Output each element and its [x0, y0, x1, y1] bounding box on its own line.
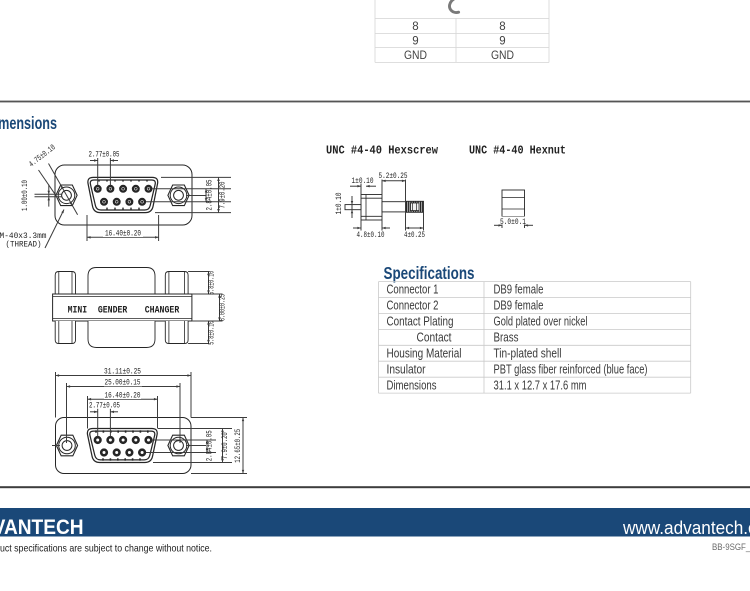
svg-text:7.9±0.20: 7.9±0.20: [219, 181, 228, 208]
svg-text:Dimensions: Dimensions: [387, 378, 437, 392]
svg-text:2.77±0.05: 2.77±0.05: [89, 402, 120, 411]
svg-text:6.00±0.25: 6.00±0.25: [219, 294, 228, 321]
svg-text:2.84±0.05: 2.84±0.05: [206, 179, 215, 210]
svg-text:GND: GND: [491, 50, 514, 62]
svg-text:Connector 2: Connector 2: [387, 299, 439, 313]
svg-text:Connector 1: Connector 1: [387, 283, 439, 297]
svg-text:2.84±0.05: 2.84±0.05: [206, 430, 215, 461]
svg-text:BB-9SGF_D: BB-9SGF_D: [712, 542, 750, 552]
svg-text:5.0±0.1: 5.0±0.1: [500, 218, 526, 227]
svg-text:ADVANTECH: ADVANTECH: [0, 516, 84, 539]
svg-text:31.11±0.25: 31.11±0.25: [104, 367, 141, 376]
svg-text:Contact: Contact: [417, 331, 452, 345]
svg-text:7.9±0.20: 7.9±0.20: [221, 432, 230, 459]
svg-text:Specifications: Specifications: [384, 263, 475, 283]
svg-text:Brass: Brass: [494, 331, 519, 345]
svg-text:UNC #4-40 Hexnut: UNC #4-40 Hexnut: [469, 145, 566, 158]
svg-text:12.65±0.25: 12.65±0.25: [234, 429, 243, 463]
svg-text:1±0.10: 1±0.10: [352, 177, 374, 186]
svg-text:9: 9: [412, 36, 418, 48]
svg-text:5.8±0.10: 5.8±0.10: [208, 271, 217, 295]
svg-text:Dimensions: Dimensions: [0, 113, 57, 133]
svg-text:2.77±0.05: 2.77±0.05: [89, 150, 120, 159]
svg-text:Insulator: Insulator: [387, 362, 426, 376]
svg-text:UNC #4-40 Hexscrew: UNC #4-40 Hexscrew: [326, 145, 438, 158]
svg-text:Gold plated over nickel: Gold plated over nickel: [494, 315, 588, 329]
svg-text:16.40±0.20: 16.40±0.20: [105, 391, 141, 400]
svg-text:31.1 x 12.7 x 17.6 mm: 31.1 x 12.7 x 17.6 mm: [494, 378, 587, 392]
svg-text:Contact Plating: Contact Plating: [387, 315, 454, 329]
svg-text:www.advantech.com: www.advantech.com: [622, 517, 750, 538]
svg-text:Tin-plated shell: Tin-plated shell: [494, 346, 562, 360]
svg-text:8: 8: [412, 21, 418, 33]
svg-text:1±0.10: 1±0.10: [335, 192, 344, 214]
svg-text:25.00±0.15: 25.00±0.15: [105, 379, 141, 388]
svg-text:MINI: MINI: [68, 304, 88, 316]
svg-text:5.2±0.25: 5.2±0.25: [379, 172, 408, 181]
svg-text:1.00±0.10: 1.00±0.10: [21, 180, 30, 211]
svg-text:DB9 female: DB9 female: [494, 283, 544, 297]
svg-text:9: 9: [499, 36, 505, 48]
svg-text:4±0.25: 4±0.25: [404, 231, 425, 240]
svg-text:GENDER: GENDER: [98, 304, 128, 316]
svg-text:4.75±0.10: 4.75±0.10: [28, 143, 58, 169]
svg-text:(THREAD): (THREAD): [6, 239, 42, 249]
svg-text:PBT glass fiber reinforced (bl: PBT glass fiber reinforced (blue face): [494, 362, 648, 376]
svg-text:Housing Material: Housing Material: [387, 346, 462, 360]
svg-text:uct specifications are subject: uct specifications are subject to change…: [0, 543, 212, 555]
svg-text:GND: GND: [404, 50, 427, 62]
svg-text:DB9 female: DB9 female: [494, 299, 544, 313]
svg-text:5.8±0.10: 5.8±0.10: [208, 321, 217, 345]
svg-text:CHANGER: CHANGER: [145, 304, 180, 316]
svg-text:8: 8: [499, 21, 505, 33]
svg-text:4.8±0.10: 4.8±0.10: [357, 231, 385, 240]
svg-text:16.40±0.20: 16.40±0.20: [105, 230, 141, 239]
